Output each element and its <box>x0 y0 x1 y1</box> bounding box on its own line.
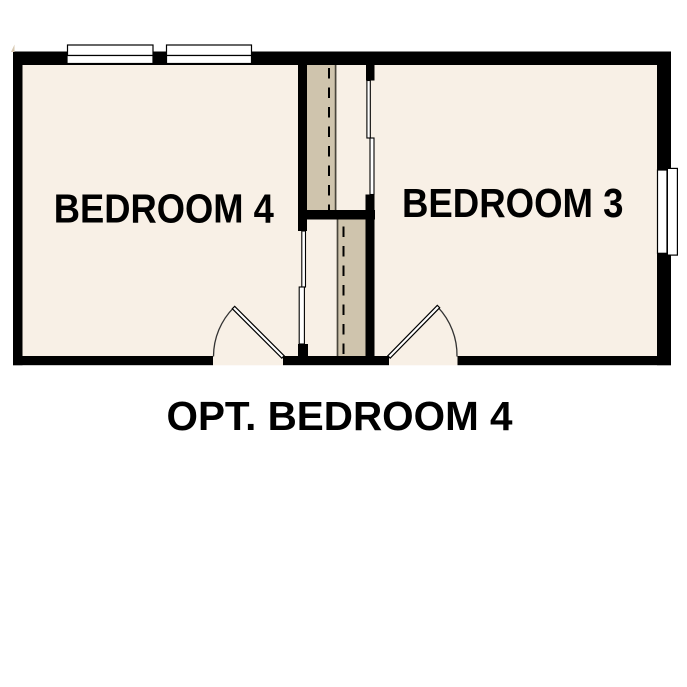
svg-text:OPT. BEDROOM 4: OPT. BEDROOM 4 <box>167 393 513 439</box>
svg-text:BEDROOM 4: BEDROOM 4 <box>54 186 274 232</box>
svg-text:BEDROOM 3: BEDROOM 3 <box>402 180 624 226</box>
